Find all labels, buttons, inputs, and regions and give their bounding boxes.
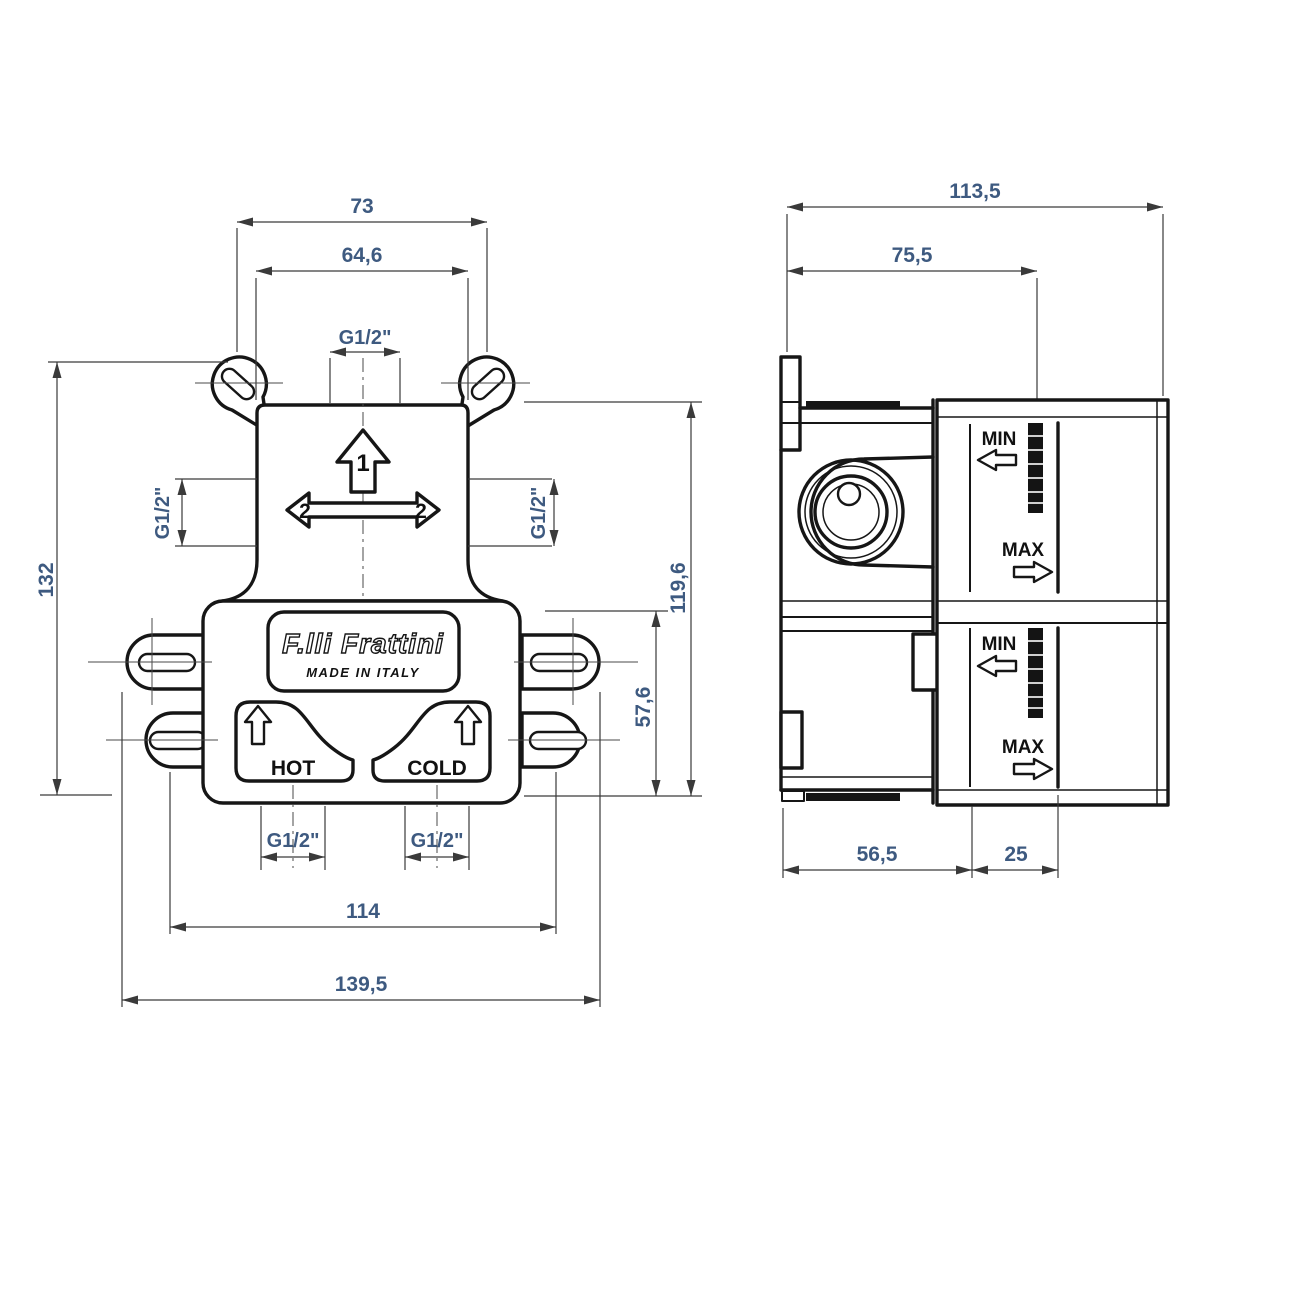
bottom-left-foot <box>782 791 804 801</box>
side-port-screw <box>838 483 860 505</box>
brand-label: F.lli Frattini <box>282 628 444 659</box>
lower-min-label: MIN <box>982 634 1017 655</box>
brand-plate: F.lli Frattini MADE IN ITALY <box>268 612 459 691</box>
dim-g12-right-label: G1/2" <box>528 487 550 540</box>
dim-g12-right: G1/2" <box>468 479 559 546</box>
cold-label: COLD <box>407 757 467 780</box>
made-in-italy-label: MADE IN ITALY <box>306 665 420 680</box>
side-port-ring-2 <box>805 466 897 558</box>
bottom-gasket-bar <box>806 793 900 801</box>
dim-56-5: 56,5 <box>783 806 972 878</box>
technical-drawing-canvas: 73 64,6 G1/2" 132 <box>0 0 1300 1300</box>
dim-114-label: 114 <box>346 900 380 923</box>
dim-64-6-label: 64,6 <box>342 244 383 267</box>
upper-min-label: MIN <box>982 429 1017 450</box>
side-view: 113,5 75,5 <box>781 180 1168 878</box>
flow-arrow-2-left-label: 2 <box>299 500 311 523</box>
dim-g12-top: G1/2" <box>330 327 400 403</box>
dim-g12-left-label: G1/2" <box>152 487 174 540</box>
dim-64-6: 64,6 <box>256 244 468 400</box>
side-body <box>781 357 947 803</box>
dim-g12-top-label: G1/2" <box>339 327 392 349</box>
dim-119-6-label: 119,6 <box>667 562 690 613</box>
flow-arrow-2-right-label: 2 <box>415 500 427 523</box>
flow-arrow-1-label: 1 <box>356 450 369 477</box>
dim-75-5-label: 75,5 <box>892 244 933 267</box>
dim-113-5-label: 113,5 <box>949 180 1001 203</box>
top-gasket-bar <box>806 401 900 409</box>
dim-113-5: 113,5 <box>787 180 1163 396</box>
front-view: 73 64,6 G1/2" 132 <box>35 195 702 1007</box>
upper-max-label: MAX <box>1002 540 1045 561</box>
dim-25: 25 <box>972 795 1058 878</box>
dim-139-5-label: 139,5 <box>335 973 388 996</box>
dim-132-label: 132 <box>35 562 58 597</box>
protection-box: MIN MAX MIN MAX <box>937 400 1168 805</box>
hot-label: HOT <box>271 757 316 780</box>
dim-57-6-label: 57,6 <box>632 687 655 728</box>
dim-73-label: 73 <box>350 195 373 218</box>
side-lower-tab <box>781 712 802 768</box>
dim-g12-hot-label: G1/2" <box>267 830 320 852</box>
dim-g12-cold-label: G1/2" <box>411 830 464 852</box>
lower-max-label: MAX <box>1002 737 1045 758</box>
valve-technical-drawing: 73 64,6 G1/2" 132 <box>0 0 1300 1300</box>
dim-g12-left: G1/2" <box>152 479 257 546</box>
dim-25-label: 25 <box>1004 843 1028 866</box>
side-port-boss <box>811 457 933 567</box>
dim-56-5-label: 56,5 <box>857 843 898 866</box>
